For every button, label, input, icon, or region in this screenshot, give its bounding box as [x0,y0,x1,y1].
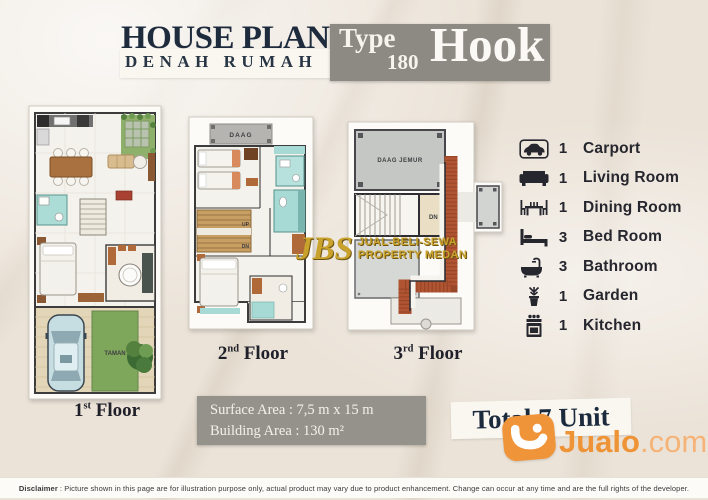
floor-plan-3-drawing: DAAG JEMUR DN [347,118,503,336]
legend-count: 3 [552,258,574,275]
legend-label: Kitchen [583,317,641,335]
disclaimer-bar: Disclaimer : Picture shown in this page … [0,477,708,498]
floor-2-number: 2 [218,343,228,364]
legend-label: Dining Room [583,199,682,217]
jualo-name: Jualo [559,424,640,459]
dining-table-icon [516,198,552,218]
floor-3-word: Floor [418,343,462,364]
daag-label: DAAG [229,132,252,139]
flyer-canvas: HOUSE PLAN DENAH RUMAH Type 180 Hook [0,0,708,500]
floor3-daag-jemur-deck: DAAG JEMUR [355,130,445,190]
legend-count: 3 [552,229,574,246]
legend-count: 1 [552,170,574,187]
type-name: Hook [430,16,544,73]
floor2-bath-top [274,146,305,186]
legend-item-bed-room: 3 Bed Room [516,223,708,253]
watermark-line2: PROPERTY MEDAN [358,249,467,262]
type-number: 180 [387,50,419,75]
legend-item-kitchen: 1 Kitchen [516,311,708,341]
floor1-inner-garden [121,113,156,159]
legend-count: 1 [552,199,574,216]
watermark: JBS JUAL-BELI-SEWA PROPERTY MEDAN [296,233,467,266]
sofa-icon [516,168,552,188]
floor-3-number: 3 [393,343,403,364]
legend-item-bathroom: 3 Bathroom [516,252,708,282]
floor1-stairs [80,199,106,235]
jualo-tld: .com [640,424,707,459]
legend-count: 1 [552,288,574,305]
disclaimer-text: : Picture shown in this page are for ill… [60,484,689,493]
floor-2-label: 2nd Floor [188,343,318,365]
legend-label: Bathroom [583,258,658,276]
floor2-bedroom-bottom [197,254,240,314]
taman-label: TAMAN [104,351,125,357]
jualo-wordmark: Jualo.com [559,426,707,457]
legend-item-living-room: 1 Living Room [516,164,708,194]
stove-icon [516,313,552,339]
legend-label: Bed Room [583,228,662,246]
jualo-logo[interactable]: Jualo.com [503,415,707,460]
room-legend: 1 Carport 1 Living Room 1 Dining Room 3 … [516,134,708,341]
floor2-bath-mid [274,190,305,232]
legend-count: 1 [552,317,574,334]
building-area-line: Building Area : 130 m² [210,421,426,442]
floor1-bathroom [37,195,67,225]
bathtub-icon [516,256,552,278]
car-icon [516,139,552,159]
floor-1-ordinal: st [83,401,91,412]
floor2-daag-deck: DAAG [210,124,272,144]
jualo-badge-icon [501,413,557,462]
bed-icon [516,227,552,247]
up-label: UP [242,222,250,228]
floor2-interior: UP DN [195,146,305,322]
watermark-lines: JUAL-BELI-SEWA PROPERTY MEDAN [358,236,467,266]
floor-1-word: Floor [96,400,140,421]
floor-plan-1-drawing: TAMAN [28,105,162,400]
floor-2-word: Floor [244,343,288,364]
floor1-master-bath [106,245,155,301]
dn-label: DN [242,244,250,250]
floor-plan-2-drawing: DAAG [188,116,318,334]
floor1-interior [35,113,156,307]
legend-item-garden: 1 Garden [516,282,708,312]
type-badge: Type 180 Hook [330,24,550,81]
floor1-car [46,315,87,391]
floor-1-number: 1 [74,400,84,421]
legend-item-carport: 1 Carport [516,134,708,164]
dn-label-floor3: DN [429,215,438,221]
legend-item-dining-room: 1 Dining Room [516,193,708,223]
area-info-box: Surface Area : 7,5 m x 15 m Building Are… [197,396,426,445]
legend-label: Living Room [583,169,679,187]
legend-label: Carport [583,140,640,158]
floor3-right-extension [477,186,499,228]
plant-icon [516,284,552,308]
floor1-dining [50,149,92,186]
legend-count: 1 [552,140,574,157]
floor-2-ordinal: nd [227,344,239,355]
floor2-stairs: UP DN [197,210,251,252]
daag-jemur-label: DAAG JEMUR [377,158,423,164]
surface-area-line: Surface Area : 7,5 m x 15 m [210,400,426,421]
legend-label: Garden [583,287,638,305]
disclaimer-label: Disclaimer [19,484,58,493]
page-subtitle: DENAH RUMAH [125,52,317,72]
floor1-outdoor: TAMAN [35,307,155,393]
floor-3-label: 3rd Floor [350,343,506,365]
floor-1-label: 1st Floor [40,400,174,422]
floor-3-ordinal: rd [403,344,413,355]
watermark-initials: JBS [296,233,353,266]
watermark-line1: JUAL-BELI-SEWA [358,236,467,249]
